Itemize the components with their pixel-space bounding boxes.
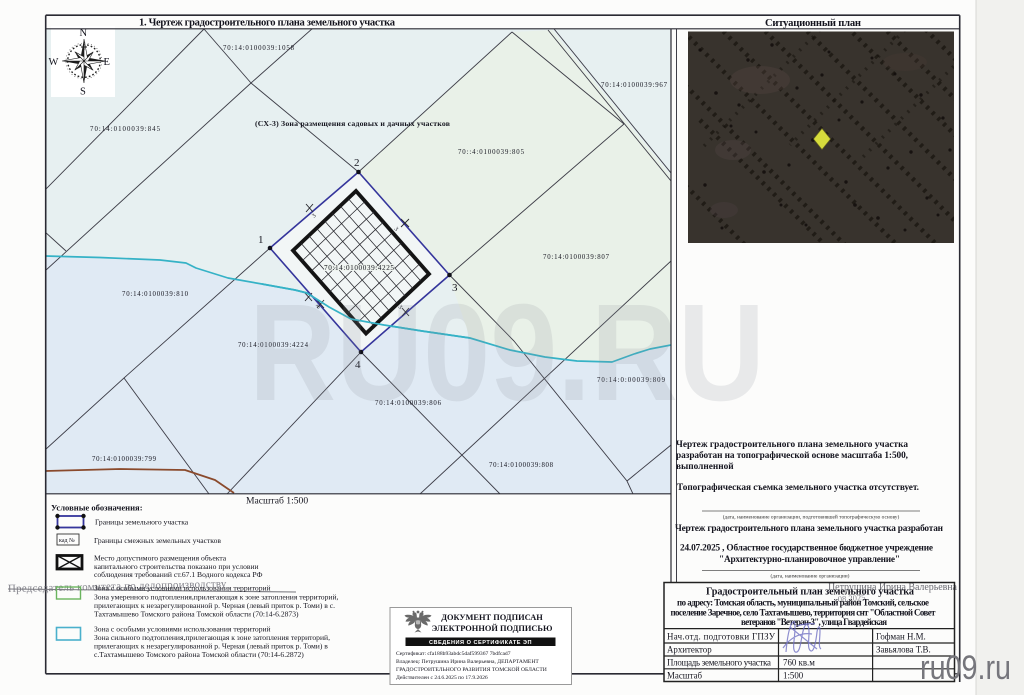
svg-text:Тахтамышево Томского района То: Тахтамышево Томского района Томской обла… bbox=[94, 610, 299, 619]
svg-text:СВЕДЕНИЯ О СЕРТИФИКАТЕ ЭП: СВЕДЕНИЯ О СЕРТИФИКАТЕ ЭП bbox=[429, 640, 532, 646]
svg-text:W: W bbox=[49, 57, 59, 68]
svg-text:70:14:0100039:4225: 70:14:0100039:4225 bbox=[324, 264, 394, 272]
svg-text:S: S bbox=[80, 87, 86, 98]
svg-text:24.07.2025 , Областное государ: 24.07.2025 , Областное государственное б… bbox=[680, 543, 933, 554]
svg-text:2: 2 bbox=[354, 157, 360, 169]
svg-text:N: N bbox=[80, 28, 88, 39]
svg-text:760 кв.м: 760 кв.м bbox=[783, 658, 815, 668]
svg-text:ветеранов "Ветеран-3", улица Г: ветеранов "Ветеран-3", улица Гвардейская bbox=[741, 617, 887, 627]
svg-text:Действителен с 24.6.2025 по 17: Действителен с 24.6.2025 по 17.9.2026 bbox=[396, 674, 488, 681]
svg-text:ЭЛЕКТРОННОЙ ПОДПИСЬЮ: ЭЛЕКТРОННОЙ ПОДПИСЬЮ bbox=[432, 624, 553, 633]
svg-text:70:14:0100039:845: 70:14:0100039:845 bbox=[90, 126, 161, 133]
svg-text:разработан на топографической: разработан на топографической основе мас… bbox=[676, 450, 908, 461]
svg-text:70:14:0100039:810: 70:14:0100039:810 bbox=[122, 291, 189, 298]
svg-text:70:14:0100039:967: 70:14:0100039:967 bbox=[601, 82, 668, 89]
svg-text:Границы земельного участка: Границы земельного участка bbox=[95, 518, 189, 527]
svg-text:поселение Заречное, село Тахта: поселение Заречное, село Тахтамышево, те… bbox=[671, 608, 937, 618]
svg-text:Гофман Н.М.: Гофман Н.М. bbox=[876, 632, 926, 642]
svg-text:ДОКУМЕНТ ПОДПИСАН: ДОКУМЕНТ ПОДПИСАН bbox=[441, 613, 543, 622]
svg-text:Топографическая съемка земельн: Топографическая съемка земельного участк… bbox=[677, 482, 919, 493]
svg-text:1. Чертеж градостроительного п: 1. Чертеж градостроительного плана земел… bbox=[139, 17, 396, 28]
svg-text:Сертификат: cfa188b93abdc5daf5: Сертификат: cfa188b93abdc5daf599367 7bdf… bbox=[396, 650, 511, 657]
svg-text:Границы смежных земельных учас: Границы смежных земельных участков bbox=[94, 536, 221, 545]
svg-text:(дата, наименование организаци: (дата, наименование организации, подгото… bbox=[723, 514, 900, 521]
svg-text:Площадь земельного участка: Площадь земельного участка bbox=[667, 658, 771, 668]
svg-text:Масштаб: Масштаб bbox=[667, 671, 703, 681]
svg-text:Нач.отд. подготовки ГПЗУ: Нач.отд. подготовки ГПЗУ bbox=[667, 632, 776, 642]
svg-text:1: 1 bbox=[258, 234, 264, 246]
svg-text:70:14:0100039:1058: 70:14:0100039:1058 bbox=[223, 45, 295, 52]
svg-text:Условные обозначения:: Условные обозначения: bbox=[51, 503, 143, 513]
svg-text:Чертеж градостроительного пл: Чертеж градостроительного плана земельно… bbox=[676, 440, 908, 450]
svg-text:Масштаб 1:500: Масштаб 1:500 bbox=[246, 496, 308, 507]
svg-text:Градостроительный план земельн: Градостроительный план земельного участк… bbox=[706, 587, 914, 598]
svg-text:ГРАДОСТРОИТЕЛЬНОГО РАЗВИТИЯ ТО: ГРАДОСТРОИТЕЛЬНОГО РАЗВИТИЯ ТОМСКОЙ ОБЛА… bbox=[396, 665, 547, 673]
svg-text:кад №: кад № bbox=[59, 538, 75, 544]
svg-text:RU09.RU: RU09.RU bbox=[249, 276, 765, 430]
svg-text:E: E bbox=[104, 57, 110, 68]
svg-text:70::4:0100039:805: 70::4:0100039:805 bbox=[458, 149, 525, 156]
svg-text:70:14:0100039:808: 70:14:0100039:808 bbox=[489, 462, 554, 469]
svg-text:Владелец: Петрушина Ирина Вале: Владелец: Петрушина Ирина Валерьевна, ДЕ… bbox=[396, 659, 539, 665]
svg-text:соблюдения требований ст.67.1: соблюдения требований ст.67.1 Водного ко… bbox=[94, 570, 263, 579]
svg-text:1:500: 1:500 bbox=[783, 671, 804, 681]
svg-text:Зона с особыми условиями испол: Зона с особыми условиями использования т… bbox=[94, 584, 271, 593]
svg-text:выполненной: выполненной bbox=[676, 461, 734, 472]
svg-text:"Архитектурно-планировочное уп: "Архитектурно-планировочное управление" bbox=[719, 555, 900, 565]
svg-text:с.Тахтамышево Томского района: с.Тахтамышево Томского района Томской об… bbox=[94, 650, 304, 659]
svg-text:(дата, наименование организаци: (дата, наименование организации) bbox=[771, 573, 850, 580]
svg-text:ru09.ru: ru09.ru bbox=[920, 649, 1011, 687]
svg-text:по адресу: Томская область, му: по адресу: Томская область, муниципальны… bbox=[677, 598, 929, 608]
svg-text:(СХ-3) Зона размещения садовых: (СХ-3) Зона размещения садовых и дачных … bbox=[255, 119, 450, 128]
svg-text:70:14:0100039:799: 70:14:0100039:799 bbox=[92, 456, 157, 463]
svg-text:Чертеж градостроительного план: Чертеж градостроительного плана земельно… bbox=[675, 523, 944, 534]
svg-text:70:14:0100039:807: 70:14:0100039:807 bbox=[543, 254, 610, 261]
svg-text:Архитектор: Архитектор bbox=[667, 645, 712, 655]
svg-text:Ситуационный план: Ситуационный план bbox=[765, 18, 861, 29]
